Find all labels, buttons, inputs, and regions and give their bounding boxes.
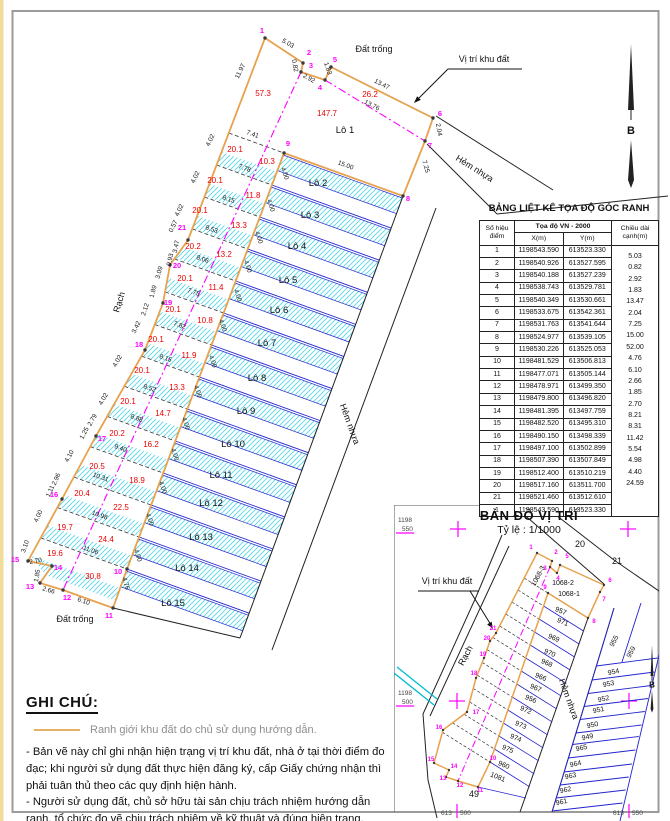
map-point-label: 16	[436, 725, 443, 731]
map-parcel-label: 968	[540, 658, 554, 669]
edge-length: 2.66	[612, 377, 658, 387]
map-road-label: Vị trí khu đất	[422, 576, 473, 586]
point-label: 21	[178, 223, 186, 232]
lot-label: Lô 4	[288, 241, 307, 252]
map-parcel-label: 959	[626, 645, 638, 659]
area-label: 20.1	[148, 335, 164, 344]
dimension-label: 3.10	[20, 539, 31, 554]
area-label: 13.2	[216, 250, 232, 259]
map-parcel-label: 973	[514, 720, 528, 731]
edge-length: 11.42	[612, 434, 658, 444]
note-paragraph-2: - Người sử dụng đất, chủ sở hữu tài sản …	[26, 794, 398, 821]
edge-length: 13.47	[612, 297, 658, 307]
dimension-label: 3.09	[155, 265, 165, 279]
map-point-label: 6	[608, 578, 612, 584]
area-label: 24.4	[98, 535, 114, 544]
point-label: 18	[135, 340, 143, 349]
point-label: 6	[438, 109, 442, 118]
area-label: 18.9	[129, 476, 145, 485]
map-road-label: Rạch	[456, 644, 475, 667]
point-label: 10	[114, 567, 122, 576]
dimension-label: 0.82	[290, 59, 299, 73]
survey-page: B5.030.822.921.8313.472.047.2515.0013.76…	[0, 0, 670, 821]
page-edge-stripe	[0, 0, 4, 821]
road-label: Đất trống	[56, 614, 93, 624]
dimension-label: 2.04	[434, 123, 443, 137]
dimension-label: 2.96	[51, 472, 63, 487]
dimension-label: 4.02	[98, 392, 111, 407]
legend-row: Ranh giới khu đất do chủ sử dụng hướng d…	[34, 724, 398, 736]
map-point-label: 9	[543, 585, 547, 591]
map-parcel-label: 964	[569, 760, 582, 769]
point-label: 2	[307, 48, 311, 57]
dimension-label: 7.41	[245, 129, 260, 140]
grid-label: 1198	[398, 690, 412, 697]
point-label: 15	[11, 555, 19, 564]
map-parcel-label: 1068-2	[552, 580, 574, 587]
lot-label: Lô 11	[209, 470, 232, 481]
lot-label: Lô 1	[336, 125, 355, 136]
map-point-label: 2	[554, 550, 558, 556]
edge-length: 1.85	[612, 388, 658, 398]
map-parcel-label: 963	[564, 772, 577, 781]
lot-label: Lô 2	[309, 178, 328, 189]
point-label: 7	[428, 141, 432, 150]
area-label: 57.3	[255, 89, 271, 98]
note-paragraph-1: - Bản vẽ này chỉ ghi nhận hiện trạng vị …	[26, 744, 398, 794]
map-point-label: 15	[428, 757, 435, 763]
edge-length: 5.54	[612, 445, 658, 455]
area-label: 10.3	[259, 157, 275, 166]
edge-length: 4.40	[612, 468, 658, 478]
dimension-label: 1.89	[149, 284, 159, 298]
point-label: 1	[260, 26, 264, 35]
area-label: 20.1	[134, 366, 150, 375]
area-label: 30.8	[85, 572, 101, 581]
area-label: 20.1	[177, 274, 193, 283]
map-point-label: 13	[440, 776, 447, 782]
map-title: BẢN ĐỒ VỊ TRÍ	[400, 508, 658, 523]
dimension-label: 7.25	[420, 160, 430, 174]
road-label: Rạch	[111, 291, 127, 314]
dimension-label: 11.97	[234, 62, 247, 80]
dimension-label: 5.03	[281, 38, 296, 51]
map-parcel-label: 974	[509, 733, 523, 744]
point-label: 17	[98, 434, 106, 443]
dimension-label: 2.92	[302, 73, 317, 86]
area-label: 16.2	[143, 440, 159, 449]
edge-length: 6.10	[612, 366, 658, 376]
map-block-label: 21	[612, 556, 622, 566]
edge-length: 1.83	[612, 286, 658, 296]
map-block-label: 49	[469, 789, 479, 799]
edge-length: 2.04	[612, 309, 658, 319]
map-point-label: 21	[490, 626, 497, 632]
map-point-label: 8	[592, 619, 596, 625]
north-letter: B	[627, 125, 635, 137]
point-label: 11	[105, 611, 113, 620]
dimension-label: 4.10	[64, 449, 76, 464]
map-point-label: 7	[602, 597, 606, 603]
coordinate-table: BẢNG LIỆT KÊ TỌA ĐỘ GÓC RANH Số hiệuđiểm…	[479, 203, 659, 517]
map-parcel-label: 965	[575, 744, 588, 753]
grid-label: 613	[613, 810, 624, 817]
point-label: 12	[63, 593, 71, 602]
edge-length: 8.21	[612, 411, 658, 421]
dimension-label: 13.76	[363, 99, 381, 113]
grid-label: 500	[460, 810, 471, 817]
area-label: 20.1	[192, 206, 208, 215]
map-point-label: 17	[473, 710, 480, 716]
map-parcel-label: 1081	[489, 771, 506, 783]
map-heading: BẢN ĐỒ VỊ TRÍ Tỷ lệ : 1/1000	[400, 508, 658, 536]
area-label: 19.6	[47, 549, 63, 558]
dimension-label: 4.00	[33, 509, 45, 524]
map-parcel-label: 969	[547, 633, 561, 644]
edge-length: 52.00	[612, 343, 658, 353]
notes-heading: GHI CHÚ:	[26, 694, 98, 714]
area-label: 20.4	[74, 489, 90, 498]
lot-label: Lô 5	[279, 275, 298, 286]
lot-label: Lô 15	[161, 598, 185, 609]
edge-length: 2.70	[612, 400, 658, 410]
map-parcel-label: 1068-1	[558, 591, 580, 598]
map-point-label: 14	[451, 764, 458, 770]
area-label: 26.2	[362, 90, 378, 99]
lot-label: Lô 8	[248, 373, 267, 384]
edge-length: 5.03	[612, 252, 658, 262]
map-parcel-label: 961	[555, 798, 568, 807]
lot-label: Lô 3	[301, 210, 320, 221]
edge-length: 4.76	[612, 354, 658, 364]
map-parcel-label: 955	[609, 634, 621, 648]
dimension-label: 2.12	[140, 302, 151, 317]
edge-length: 8.31	[612, 422, 658, 432]
lot-label: Lô 7	[258, 338, 277, 349]
dimension-label: 15.00	[337, 160, 355, 172]
map-point-label: 20	[484, 636, 491, 642]
lot-label: Lô 13	[189, 532, 213, 543]
area-label: 20.1	[120, 397, 136, 406]
area-label: 11.4	[209, 283, 225, 292]
dimension-label: 6.10	[76, 596, 91, 607]
point-label: 9	[286, 139, 290, 148]
point-label: 3	[309, 61, 313, 70]
road-label: Đất trống	[355, 44, 392, 54]
lot-label: Lô 14	[175, 563, 199, 574]
area-label: 13.3	[169, 383, 185, 392]
lot-label: Lô 9	[237, 406, 256, 417]
point-label: 4	[318, 83, 323, 92]
edge-length: 15.00	[612, 331, 658, 341]
north-letter: B	[649, 680, 655, 689]
area-label: 19.7	[57, 523, 73, 532]
coordinate-table-grid: Số hiệuđiểm Tọa độ VN - 2000 Chiều dàicạ…	[479, 220, 659, 517]
map-point-label: 1	[529, 545, 533, 551]
point-label: 19	[164, 298, 172, 307]
area-label: 13.3	[231, 221, 247, 230]
grid-label: 500	[402, 699, 413, 706]
lot-label: Lô 6	[270, 305, 289, 316]
table-row: 11198543.590613523.3305.030.822.921.8313…	[480, 245, 659, 257]
point-label: 14	[54, 563, 63, 572]
map-parcel-label: 960	[497, 760, 511, 771]
area-label: 11.9	[182, 351, 198, 360]
point-label: 5	[333, 55, 337, 64]
area-label: 20.1	[227, 145, 243, 154]
map-parcel-label: 975	[501, 744, 515, 755]
lot-label: Lô 12	[199, 498, 223, 509]
area-label: 147.7	[317, 109, 338, 118]
legend-text: Ranh giới khu đất do chủ sử dụng hướng d…	[90, 724, 317, 736]
point-label: 16	[50, 490, 58, 499]
edge-length: 0.82	[612, 263, 658, 273]
dimension-label: 1.83	[322, 61, 333, 76]
lot-label: Lô 10	[221, 439, 245, 450]
map-point-label: 18	[471, 671, 478, 677]
area-label: 11.8	[246, 191, 262, 200]
map-parcel-label: 954	[607, 668, 620, 677]
road-label: Hẻm nhựa	[454, 153, 495, 184]
map-parcel-label: 966	[534, 672, 548, 683]
road-label: Vị trí khu đất	[459, 54, 510, 64]
map-road-label: Hẻm nhựa	[557, 677, 581, 720]
map-parcel-label: 953	[602, 680, 615, 689]
edge-length: 7.25	[612, 320, 658, 330]
area-label: 22.5	[113, 503, 129, 512]
boundary-line-swatch	[34, 729, 80, 731]
point-label: 20	[173, 261, 181, 270]
map-parcel-label: 951	[592, 706, 605, 715]
edge-length: 2.92	[612, 275, 658, 285]
dimension-label: 4.02	[112, 354, 125, 369]
map-point-label: 5	[565, 554, 569, 560]
area-label: 20.5	[89, 462, 105, 471]
point-label: 8	[406, 194, 410, 203]
map-parcel-label: 962	[559, 786, 572, 795]
table-title: BẢNG LIỆT KÊ TỌA ĐỘ GÓC RANH	[479, 203, 659, 214]
map-parcel-label: 971	[556, 617, 570, 628]
area-label: 20.2	[185, 242, 201, 251]
area-label: 20.2	[109, 429, 125, 438]
area-label: 20.1	[207, 176, 223, 185]
notes-section: GHI CHÚ: Ranh giới khu đất do chủ sử dụn…	[26, 694, 398, 821]
edge-length: 24.59	[612, 479, 658, 489]
point-label: 13	[26, 582, 34, 591]
map-point-label: 19	[480, 652, 487, 658]
dimension-label: 4.02	[190, 170, 202, 185]
map-scale: Tỷ lệ : 1/1000	[400, 524, 658, 536]
dimension-label: 1.25	[79, 426, 91, 441]
dimension-label: 4.02	[174, 203, 186, 218]
location-map-group: B119855011985006135006135501234567891011…	[394, 505, 670, 821]
dimension-label: 2.79	[87, 413, 100, 428]
grid-label: 550	[632, 810, 643, 817]
map-parcel-label: 949	[581, 733, 594, 742]
map-parcel-label: 957	[554, 606, 568, 617]
map-parcel-label: 952	[597, 695, 610, 704]
map-parcel-label: 972	[519, 705, 533, 716]
area-label: 10.8	[197, 316, 213, 325]
dimension-label: 3.42	[131, 320, 143, 335]
table-header-row: Số hiệuđiểm Tọa độ VN - 2000 Chiều dàicạ…	[480, 221, 659, 233]
area-label: 14.7	[155, 409, 171, 418]
dimension-label: 4.02	[205, 133, 217, 148]
map-point-label: 12	[457, 783, 464, 789]
map-block-label: 20	[575, 539, 585, 549]
map-parcel-label: 950	[586, 721, 599, 730]
edge-length: 4.98	[612, 456, 658, 466]
map-point-label: 10	[490, 756, 497, 762]
grid-label: 613	[441, 810, 452, 817]
